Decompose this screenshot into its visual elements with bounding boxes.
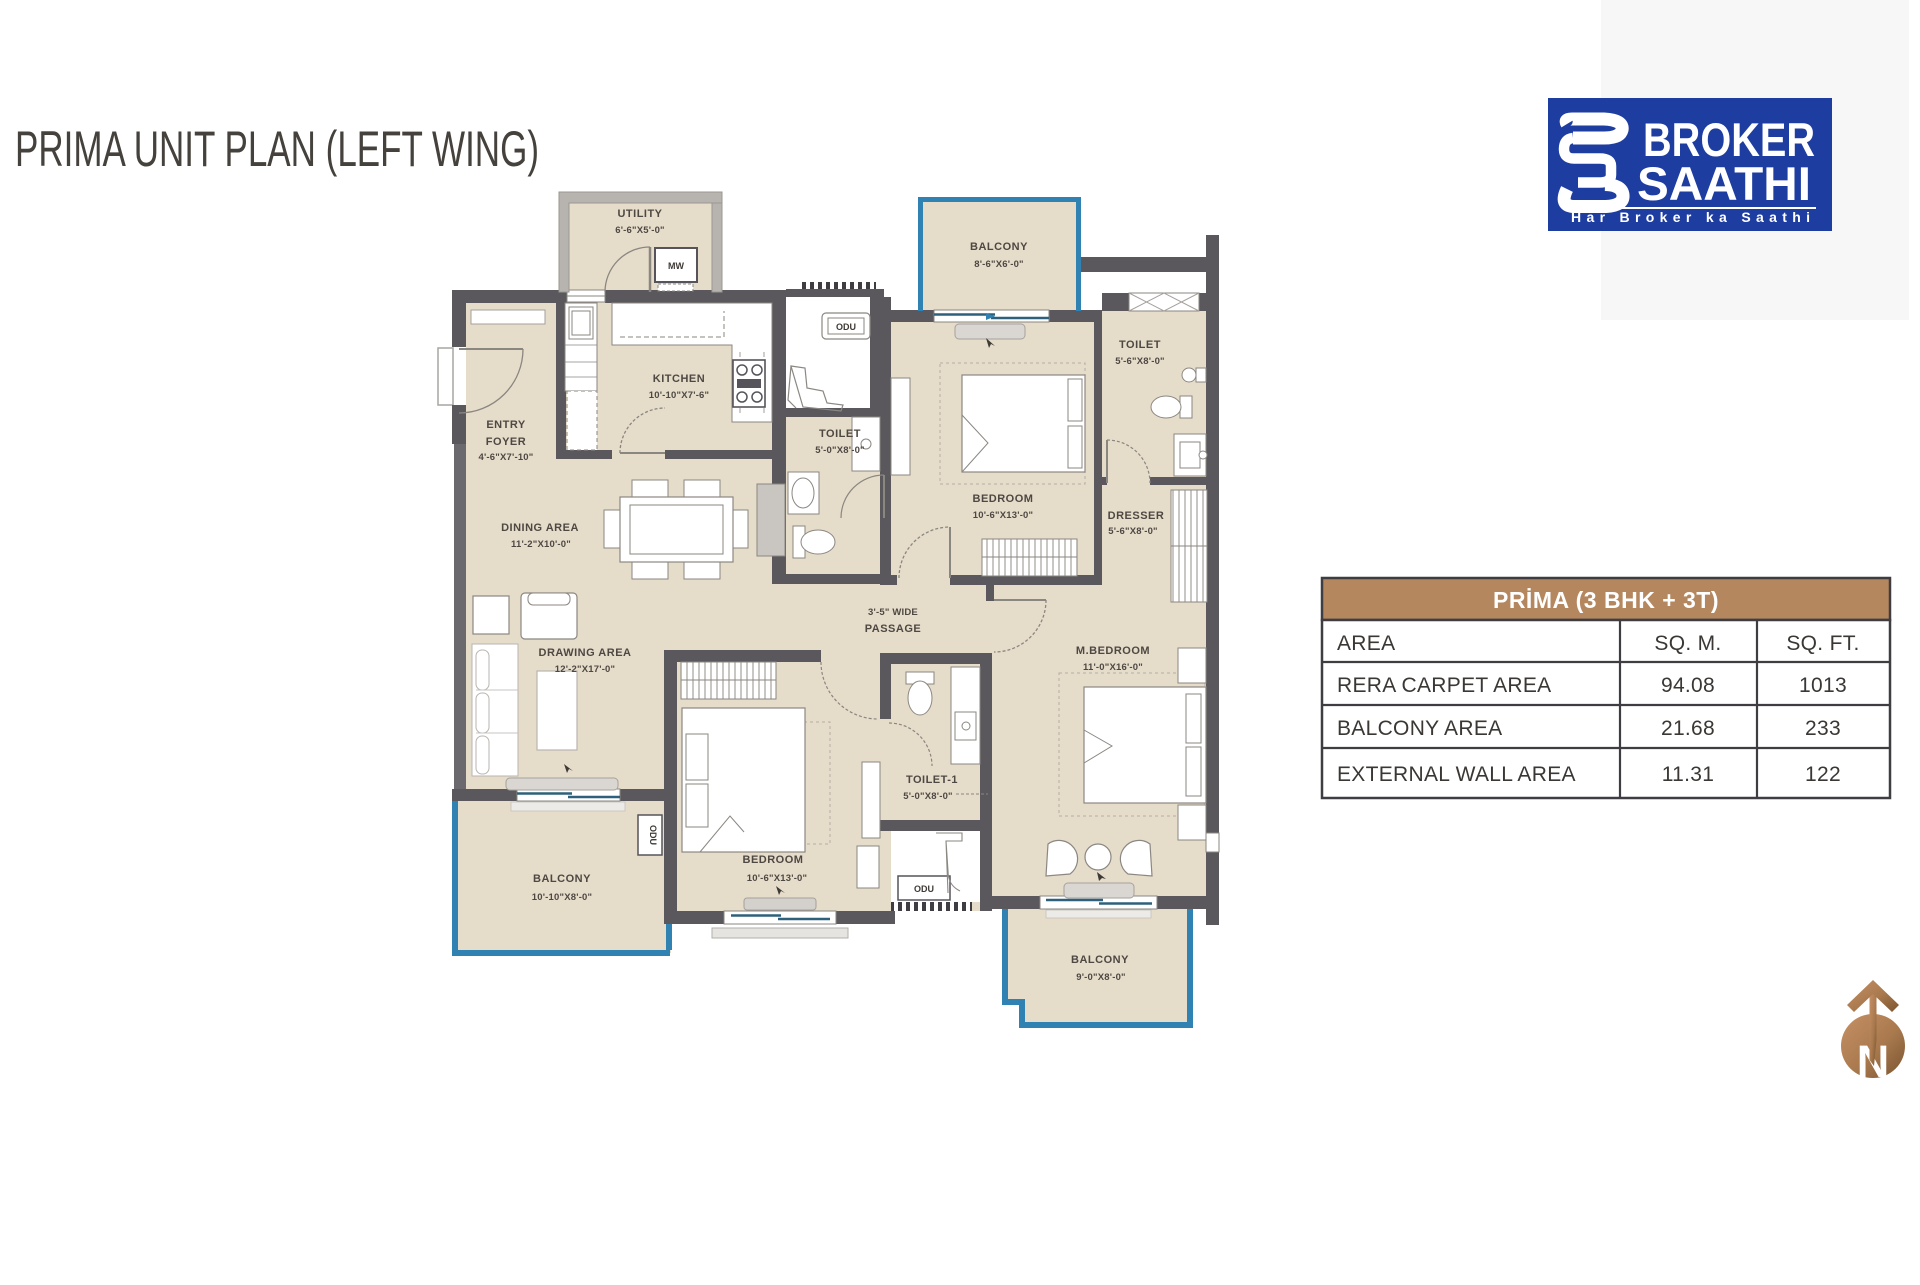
svg-text:12'-2"X17'-0": 12'-2"X17'-0" <box>555 664 616 675</box>
svg-text:9'-0"X8'-0": 9'-0"X8'-0" <box>1076 972 1126 983</box>
svg-text:M.BEDROOM: M.BEDROOM <box>1076 645 1150 657</box>
svg-text:5'-6"X8'-0": 5'-6"X8'-0" <box>1108 526 1158 537</box>
svg-text:ODU: ODU <box>836 322 856 332</box>
svg-text:3'-5" WIDE: 3'-5" WIDE <box>868 607 918 618</box>
svg-text:TOILET: TOILET <box>1119 339 1161 351</box>
svg-text:KITCHEN: KITCHEN <box>653 373 705 385</box>
svg-text:10'-6"X13'-0": 10'-6"X13'-0" <box>973 510 1034 521</box>
svg-text:FOYER: FOYER <box>486 436 526 448</box>
svg-text:122: 122 <box>1805 763 1841 786</box>
svg-text:8'-6"X6'-0": 8'-6"X6'-0" <box>974 259 1024 270</box>
svg-text:UTILITY: UTILITY <box>617 208 662 220</box>
svg-text:DINING AREA: DINING AREA <box>501 522 579 534</box>
svg-text:10'-6"X13'-0": 10'-6"X13'-0" <box>747 873 808 884</box>
svg-text:BEDROOM: BEDROOM <box>973 493 1034 505</box>
svg-text:MW: MW <box>668 261 684 271</box>
svg-text:6'-6"X5'-0": 6'-6"X5'-0" <box>615 225 665 236</box>
svg-text:SQ. FT.: SQ. FT. <box>1786 632 1859 655</box>
svg-text:10'-10"X7'-6": 10'-10"X7'-6" <box>649 390 710 401</box>
svg-text:ODU: ODU <box>914 884 934 894</box>
svg-text:11.31: 11.31 <box>1662 763 1715 786</box>
svg-text:SAATHI: SAATHI <box>1637 157 1811 210</box>
svg-text:PRİMA (3 BHK + 3T): PRİMA (3 BHK + 3T) <box>1493 587 1719 613</box>
svg-text:10'-10"X8'-0": 10'-10"X8'-0" <box>532 892 593 903</box>
svg-text:5'-0"X8'-0": 5'-0"X8'-0" <box>815 445 865 456</box>
svg-text:BALCONY AREA: BALCONY AREA <box>1337 717 1502 740</box>
svg-text:5'-6"X8'-0": 5'-6"X8'-0" <box>1115 356 1165 367</box>
svg-text:BALCONY: BALCONY <box>533 873 591 885</box>
svg-text:DRESSER: DRESSER <box>1108 510 1165 522</box>
svg-text:ENTRY: ENTRY <box>486 419 526 431</box>
svg-text:TOILET: TOILET <box>819 428 861 440</box>
svg-text:BEDROOM: BEDROOM <box>743 854 804 866</box>
svg-text:94.08: 94.08 <box>1661 674 1715 697</box>
svg-text:4'-6"X7'-10": 4'-6"X7'-10" <box>478 452 533 463</box>
svg-text:AREA: AREA <box>1337 632 1395 655</box>
svg-text:BALCONY: BALCONY <box>970 241 1028 253</box>
svg-text:5'-0"X8'-0": 5'-0"X8'-0" <box>903 791 953 802</box>
svg-text:233: 233 <box>1805 717 1841 740</box>
svg-text:PASSAGE: PASSAGE <box>865 623 921 635</box>
svg-text:11'-0"X16'-0": 11'-0"X16'-0" <box>1083 662 1143 673</box>
svg-text:SQ. M.: SQ. M. <box>1654 632 1721 655</box>
svg-text:EXTERNAL WALL AREA: EXTERNAL WALL AREA <box>1337 763 1576 786</box>
svg-text:DRAWING AREA: DRAWING AREA <box>539 647 632 659</box>
svg-text:21.68: 21.68 <box>1661 717 1715 740</box>
svg-text:RERA CARPET AREA: RERA CARPET AREA <box>1337 674 1551 697</box>
svg-text:PRIMA UNIT PLAN (LEFT WING): PRIMA UNIT PLAN (LEFT WING) <box>15 121 539 177</box>
svg-text:ODU: ODU <box>648 825 658 845</box>
svg-text:1013: 1013 <box>1799 674 1847 697</box>
svg-text:BALCONY: BALCONY <box>1071 954 1129 966</box>
svg-text:TOILET-1: TOILET-1 <box>906 774 958 786</box>
svg-text:11'-2"X10'-0": 11'-2"X10'-0" <box>511 539 571 550</box>
